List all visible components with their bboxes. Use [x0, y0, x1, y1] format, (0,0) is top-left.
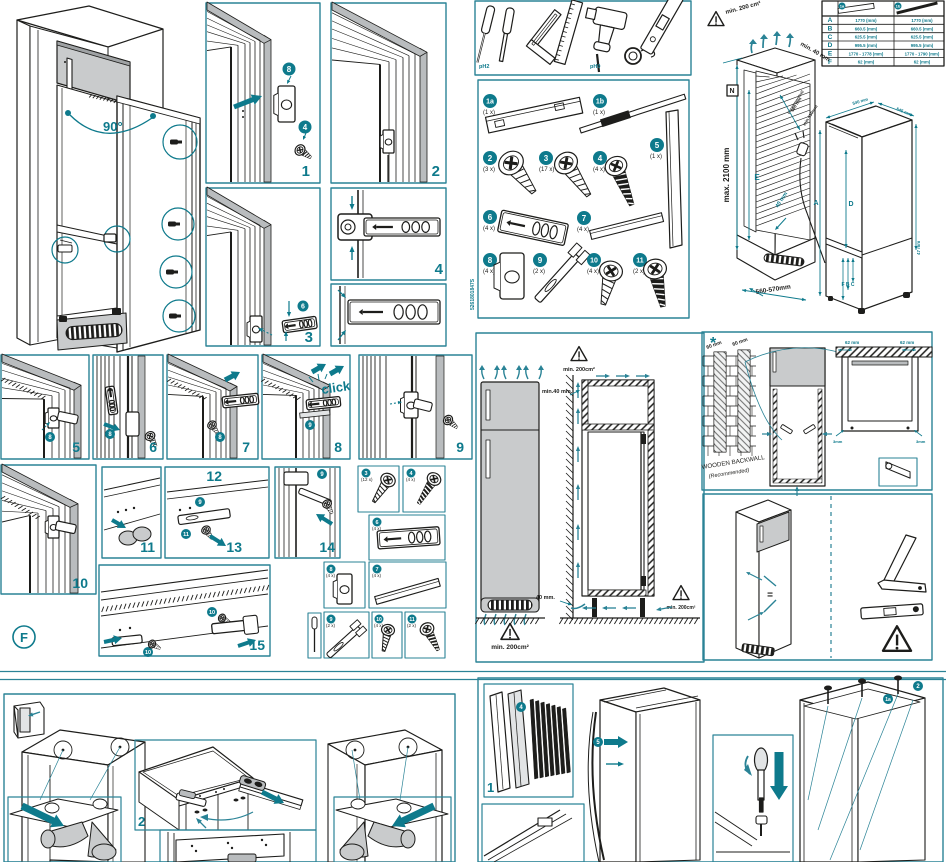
svg-text:15: 15: [249, 637, 265, 653]
svg-text:(12 x): (12 x): [361, 477, 373, 482]
svg-text:11: 11: [409, 617, 415, 623]
svg-text:min. 200cm²: min. 200cm²: [667, 605, 696, 611]
svg-text:2: 2: [432, 163, 440, 180]
svg-text:40 mm.: 40 mm.: [536, 595, 555, 601]
svg-text:12: 12: [206, 468, 222, 484]
svg-text:1770 (mm): 1770 (mm): [855, 18, 877, 23]
svg-text:(4 x): (4 x): [326, 573, 336, 578]
svg-text:B: B: [828, 26, 833, 33]
svg-text:(4 x): (4 x): [593, 167, 605, 173]
svg-text:10: 10: [72, 575, 88, 591]
svg-text:2: 2: [138, 814, 145, 829]
svg-text:625.5 (mm): 625.5 (mm): [855, 35, 878, 40]
svg-text:min. 200cm²: min. 200cm²: [491, 644, 529, 651]
svg-text:5261801847S: 5261801847S: [470, 278, 476, 310]
svg-text:pH0: pH0: [590, 64, 600, 70]
svg-text:660.5 (mm): 660.5 (mm): [911, 26, 934, 31]
svg-text:5: 5: [72, 439, 80, 455]
svg-text:7: 7: [582, 214, 587, 223]
svg-text:90°: 90°: [103, 119, 123, 134]
svg-text:F: F: [20, 630, 28, 645]
svg-text:625.5 (mm): 625.5 (mm): [911, 35, 934, 40]
svg-text:3mm: 3mm: [916, 439, 926, 444]
svg-text:4: 4: [303, 123, 308, 132]
svg-text:(4 x): (4 x): [587, 269, 599, 275]
svg-text:10: 10: [209, 610, 215, 616]
svg-text:9: 9: [456, 439, 464, 455]
svg-text:3: 3: [544, 154, 549, 163]
svg-text:1770 - 1790 (mm): 1770 - 1790 (mm): [905, 51, 940, 56]
svg-text:11: 11: [636, 258, 644, 265]
svg-text:3mm: 3mm: [833, 439, 843, 444]
svg-text:D: D: [828, 42, 833, 49]
svg-text:62 (mm): 62 (mm): [858, 60, 875, 65]
svg-text:min.40 mm.: min.40 mm.: [542, 389, 573, 395]
svg-text:(4 x): (4 x): [483, 269, 495, 275]
svg-text:5: 5: [655, 141, 660, 150]
svg-text:F B C: F B C: [841, 282, 854, 288]
svg-text:A: A: [828, 17, 833, 24]
svg-text:A: A: [813, 200, 818, 207]
svg-text:995.5 (mm): 995.5 (mm): [855, 43, 878, 48]
svg-text:13: 13: [226, 539, 242, 555]
svg-text:(2 x): (2 x): [407, 623, 417, 628]
svg-text:(4 x): (4 x): [483, 226, 495, 232]
svg-text:=: =: [767, 590, 773, 601]
svg-text:6: 6: [149, 439, 157, 455]
svg-text:11: 11: [183, 532, 189, 538]
svg-text:62 mm: 62 mm: [900, 340, 914, 345]
svg-text:9: 9: [538, 256, 543, 265]
svg-text:(4 x): (4 x): [577, 227, 589, 233]
svg-text:10: 10: [145, 650, 151, 656]
svg-text:11: 11: [140, 539, 155, 555]
svg-text:pH2: pH2: [479, 64, 489, 70]
svg-text:660.5 (mm): 660.5 (mm): [855, 26, 878, 31]
svg-text:max. 2100 mm: max. 2100 mm: [722, 148, 731, 203]
svg-text:min. 200cm²: min. 200cm²: [563, 366, 595, 373]
svg-text:(4 x): (4 x): [406, 477, 416, 482]
svg-text:1: 1: [302, 163, 310, 180]
svg-text:4: 4: [435, 261, 444, 278]
svg-text:D: D: [848, 201, 853, 208]
svg-text:995.5 (mm): 995.5 (mm): [911, 43, 934, 48]
svg-text:8: 8: [488, 256, 493, 265]
svg-text:3: 3: [305, 329, 313, 346]
svg-text:1770 (mm): 1770 (mm): [911, 18, 933, 23]
svg-text:C: C: [828, 34, 833, 41]
svg-text:6: 6: [488, 213, 493, 222]
svg-text:1a: 1a: [885, 697, 891, 703]
svg-text:(3 x): (3 x): [483, 167, 495, 173]
svg-text:14: 14: [319, 539, 335, 555]
svg-text:1a: 1a: [840, 3, 845, 8]
svg-text:1b: 1b: [596, 99, 604, 106]
svg-text:(2 x): (2 x): [533, 269, 545, 275]
svg-text:1: 1: [487, 780, 494, 795]
svg-text:62 mm: 62 mm: [845, 340, 859, 345]
svg-text:E: E: [754, 173, 760, 182]
svg-text:6: 6: [301, 304, 305, 311]
svg-text:(1 x): (1 x): [650, 154, 662, 160]
svg-text:8: 8: [287, 65, 292, 74]
svg-text:(2 x): (2 x): [326, 623, 336, 628]
svg-text:10: 10: [590, 258, 598, 265]
svg-text:62 (mm): 62 (mm): [914, 60, 931, 65]
svg-text:1a: 1a: [486, 99, 494, 106]
svg-text:47 mm: 47 mm: [916, 241, 921, 255]
svg-text:(4 x): (4 x): [372, 573, 382, 578]
svg-text:4: 4: [598, 154, 603, 163]
svg-text:(17 x): (17 x): [539, 167, 554, 173]
svg-text:8: 8: [334, 439, 342, 455]
svg-text:2: 2: [488, 154, 493, 163]
svg-text:N: N: [729, 88, 734, 95]
svg-text:(1 x): (1 x): [593, 110, 605, 116]
svg-text:7: 7: [242, 439, 250, 455]
svg-text:1770 - 1778 (mm): 1770 - 1778 (mm): [849, 51, 884, 56]
svg-text:10: 10: [376, 617, 382, 623]
svg-text:1b: 1b: [896, 3, 901, 8]
